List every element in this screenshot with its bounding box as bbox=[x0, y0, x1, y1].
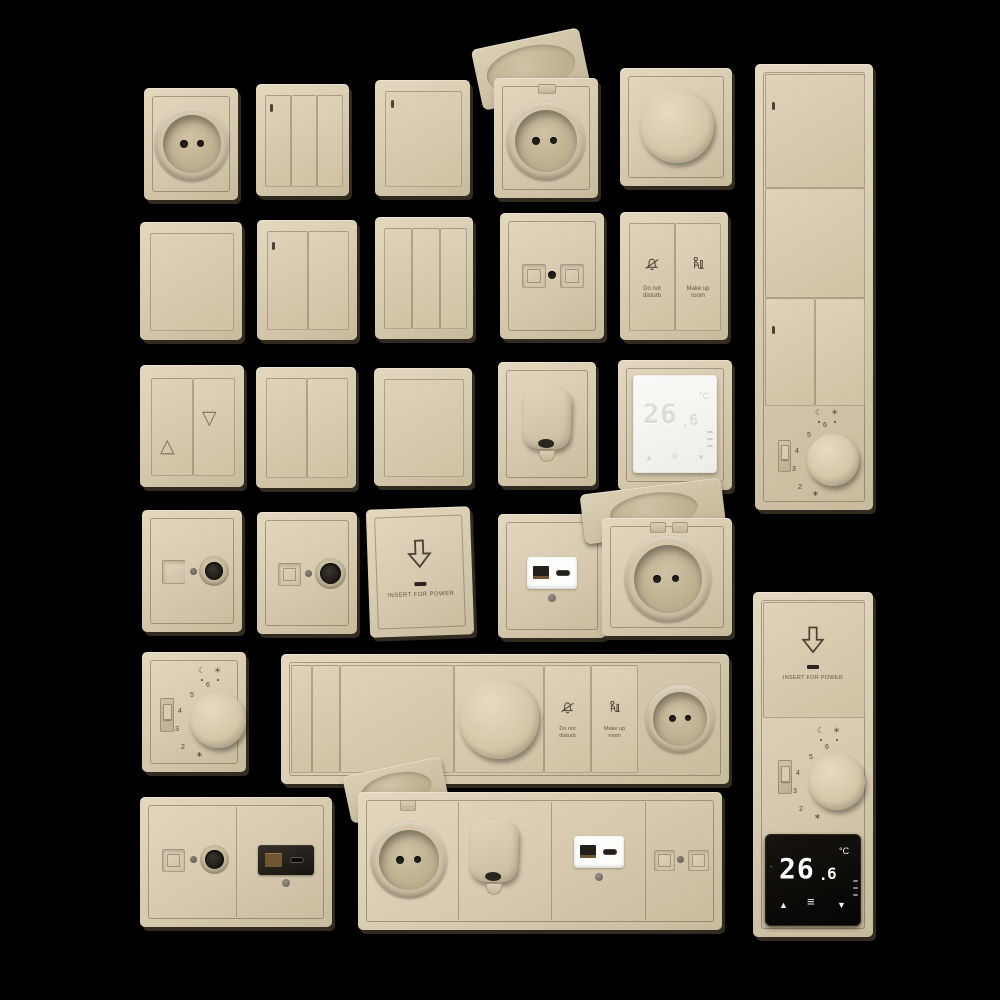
dial-number-3: 3 bbox=[175, 726, 179, 733]
dial-number-5: 5 bbox=[807, 432, 811, 439]
data-jack-opening bbox=[565, 269, 579, 283]
socket-pin-hole bbox=[197, 140, 204, 147]
heat-mode-mark: . bbox=[635, 409, 637, 416]
heat-mode-mark: . bbox=[770, 860, 772, 869]
cable-outlet-plate bbox=[498, 362, 596, 486]
temperature-unit: °C bbox=[839, 846, 849, 856]
socket-pin-hole bbox=[396, 856, 404, 864]
cable-outlet-boot bbox=[469, 819, 519, 883]
thermostat-white-screen[interactable]: 26 . 6 °C . ▲ ≡ ▼ bbox=[633, 375, 717, 473]
usb-a-port[interactable] bbox=[533, 566, 549, 579]
center-dot bbox=[190, 856, 197, 863]
thermostat-dial-plate: ☾ ☀ 6 5 4 3 2 ∗ bbox=[142, 652, 246, 772]
make-up-room-button[interactable]: Make up room bbox=[591, 665, 638, 773]
temperature-integer: 26 bbox=[643, 399, 678, 430]
module-seam bbox=[236, 807, 237, 917]
insert-card-arrow-icon bbox=[798, 625, 828, 657]
vertical-multi-panel: ☾ ☀ 6 5 4 3 2 ∗ bbox=[755, 64, 873, 510]
indicator-dot bbox=[391, 100, 394, 108]
lid-hinge-tab bbox=[538, 84, 556, 94]
usb-insert bbox=[527, 557, 577, 589]
temp-down-button[interactable]: ▼ bbox=[837, 900, 846, 910]
dial-tick bbox=[836, 739, 838, 741]
screen-side-mark bbox=[707, 431, 713, 433]
dial-number-3: 3 bbox=[792, 466, 796, 473]
switch-3gang-plate bbox=[256, 84, 349, 196]
screen-side-mark bbox=[853, 880, 858, 882]
usb-c-port[interactable] bbox=[603, 849, 617, 855]
dnd-label-line2: disturb bbox=[547, 733, 588, 740]
lid-hinge-tab bbox=[650, 522, 666, 533]
rocker-top[interactable] bbox=[765, 74, 865, 188]
socket-flip-plate-2 bbox=[602, 518, 732, 636]
maid-icon bbox=[606, 698, 623, 717]
thermostat-dial-knob[interactable] bbox=[809, 754, 865, 810]
data-jack-opening bbox=[527, 269, 541, 283]
multi-frame-horizontal-2 bbox=[358, 792, 722, 930]
triangle-down-icon: ▽ bbox=[202, 407, 217, 430]
indicator-dot bbox=[772, 326, 775, 334]
temp-up-button[interactable]: ▲ bbox=[779, 900, 788, 910]
rocker-left[interactable] bbox=[384, 228, 412, 329]
sun-icon: ☀ bbox=[831, 408, 838, 417]
dial-number-2: 2 bbox=[181, 744, 185, 751]
rocker-right[interactable] bbox=[317, 95, 343, 187]
dial-tick bbox=[820, 739, 822, 741]
socket-pin-hole bbox=[180, 140, 188, 148]
dial-number-6: 6 bbox=[206, 682, 210, 689]
coax-connector[interactable] bbox=[200, 845, 229, 874]
rocker-2gang-left[interactable] bbox=[765, 298, 815, 406]
rocker-right[interactable] bbox=[440, 228, 467, 329]
dimmer-plate bbox=[620, 68, 732, 186]
data-jack[interactable] bbox=[162, 849, 185, 872]
thermostat-black-screen[interactable]: 26 . 6 °C . ▲ ≡ ▼ bbox=[765, 834, 861, 926]
coax-connector[interactable] bbox=[199, 556, 229, 586]
dnd-label-line2: disturb bbox=[632, 293, 672, 300]
module-seam bbox=[645, 802, 646, 920]
make-up-room-button[interactable]: Make up room bbox=[675, 223, 721, 331]
temperature-unit: °C bbox=[699, 391, 709, 401]
usb-insert bbox=[574, 836, 624, 868]
frost-star-icon: ∗ bbox=[812, 489, 819, 498]
coax-connector[interactable] bbox=[315, 558, 346, 589]
product-collage-stage: ☾ ☀ 6 5 4 3 2 ∗ bbox=[0, 0, 1000, 1000]
data-jack-right[interactable] bbox=[560, 264, 584, 288]
socket-recess bbox=[653, 692, 707, 746]
card-slot[interactable] bbox=[807, 665, 819, 669]
keycard-holder-plate: INSERT FOR POWER bbox=[366, 506, 474, 638]
temperature-decimal: 6 bbox=[827, 864, 838, 883]
slider-knob[interactable] bbox=[163, 704, 172, 720]
dial-number-4: 4 bbox=[795, 448, 799, 455]
center-dot bbox=[190, 568, 197, 575]
data-jack[interactable] bbox=[278, 563, 301, 586]
screen-side-mark bbox=[707, 445, 713, 447]
dial-tick bbox=[201, 679, 203, 681]
thermostat-dial-knob[interactable] bbox=[807, 434, 859, 486]
socket-pin-hole bbox=[414, 856, 421, 863]
thermostat-dial-module: ☾ ☀ 6 5 4 3 2 ∗ bbox=[765, 406, 863, 500]
center-dot bbox=[305, 570, 312, 577]
rocker-narrow-1[interactable] bbox=[291, 665, 312, 773]
mur-label-line2: room bbox=[678, 293, 718, 300]
lid-hinge-tab bbox=[400, 800, 416, 811]
socket-recess bbox=[634, 545, 702, 613]
dial-number-5: 5 bbox=[190, 692, 194, 699]
tv-jack-notch[interactable] bbox=[162, 560, 185, 584]
thermostat-dial-knob[interactable] bbox=[190, 692, 246, 748]
module-seam bbox=[458, 802, 459, 920]
media-outlet-plate bbox=[500, 213, 604, 339]
data-jack-opening bbox=[167, 854, 180, 867]
moon-icon: ☾ bbox=[198, 666, 205, 675]
socket-pin-hole bbox=[685, 715, 691, 721]
dial-number-2: 2 bbox=[798, 484, 802, 491]
socket-pin-hole bbox=[669, 715, 676, 722]
dial-tick bbox=[834, 421, 836, 423]
dial-number-6: 6 bbox=[825, 744, 829, 751]
hotel-service-switch-plate: Do not disturb Make up room bbox=[620, 212, 728, 340]
rocker-middle[interactable] bbox=[291, 95, 317, 187]
switch-1gang-plate bbox=[375, 80, 470, 196]
data-jack-right[interactable] bbox=[688, 850, 709, 871]
keycard-holder-module[interactable]: INSERT FOR POWER bbox=[763, 602, 865, 718]
rocker-single[interactable] bbox=[150, 233, 234, 331]
screen-side-mark bbox=[853, 894, 858, 896]
data-jack-opening bbox=[658, 854, 671, 867]
indicator-dot bbox=[772, 102, 775, 110]
dial-number-2: 2 bbox=[799, 806, 803, 813]
switch-2gang-plate bbox=[257, 220, 357, 340]
dial-number-3: 3 bbox=[793, 788, 797, 795]
slider-knob[interactable] bbox=[781, 445, 789, 460]
temperature-decimal: 6 bbox=[689, 411, 699, 429]
data-jack-left[interactable] bbox=[522, 264, 546, 288]
thermostat-dial-module: ☾ ☀ 6 5 4 3 2 ∗ bbox=[763, 720, 863, 828]
moon-icon: ☾ bbox=[815, 408, 822, 417]
socket-pin-hole bbox=[550, 137, 557, 144]
blinds-switch-plate: △ ▽ bbox=[140, 365, 244, 487]
do-not-disturb-button[interactable]: Do not disturb bbox=[629, 223, 675, 331]
dial-number-4: 4 bbox=[796, 770, 800, 777]
bell-slash-icon bbox=[642, 254, 662, 274]
blank-plate bbox=[374, 368, 472, 486]
tv-usb-combo-plate bbox=[140, 797, 332, 927]
rocker-large-blank[interactable] bbox=[765, 188, 865, 298]
blinds-down-button[interactable]: ▽ bbox=[193, 378, 235, 476]
coax-opening bbox=[205, 562, 223, 580]
screw bbox=[595, 873, 603, 881]
socket-recess bbox=[379, 830, 439, 890]
plate-frame-line bbox=[374, 514, 466, 629]
socket-pin-hole bbox=[532, 137, 540, 145]
dnd-label-line1: Do not bbox=[632, 286, 672, 293]
blank-rocker-plate bbox=[140, 222, 242, 340]
rocker-left[interactable] bbox=[266, 378, 307, 478]
rocker-single[interactable] bbox=[384, 379, 464, 477]
mur-label-line2: room bbox=[594, 733, 635, 740]
screen-side-mark bbox=[707, 438, 713, 440]
temp-up-button[interactable]: ▲ bbox=[645, 453, 653, 462]
rocker-2gang-right[interactable] bbox=[815, 298, 865, 406]
socket-pin-hole bbox=[672, 575, 679, 582]
dial-number-4: 4 bbox=[178, 708, 182, 715]
coax-opening bbox=[205, 850, 224, 869]
sun-icon: ☀ bbox=[833, 726, 840, 735]
menu-button[interactable]: ≡ bbox=[807, 894, 815, 909]
moon-icon: ☾ bbox=[817, 726, 824, 735]
temp-down-button[interactable]: ▼ bbox=[697, 453, 705, 462]
multi-frame-horizontal: Do not disturb Make up room bbox=[281, 654, 729, 784]
dial-mode-slider[interactable] bbox=[778, 760, 792, 794]
cable-outlet-boot bbox=[522, 386, 572, 450]
usb-c-port[interactable] bbox=[556, 570, 570, 576]
cable-exit-hole bbox=[485, 872, 501, 882]
socket-pin-hole bbox=[653, 575, 661, 583]
do-not-disturb-button[interactable]: Do not disturb bbox=[544, 665, 591, 773]
dial-number-6: 6 bbox=[823, 422, 827, 429]
sun-icon: ☀ bbox=[214, 666, 221, 675]
slider-knob[interactable] bbox=[781, 766, 790, 782]
tv-outlet-b-plate bbox=[257, 512, 357, 634]
thermostat-dial-module: ☾ ☀ 6 5 4 3 2 ∗ bbox=[146, 660, 242, 764]
dial-mode-slider[interactable] bbox=[778, 440, 791, 472]
card-slot[interactable] bbox=[414, 582, 426, 586]
switch-3gang-plain-plate bbox=[375, 217, 473, 339]
screen-side-mark bbox=[853, 887, 858, 889]
vertical-hotel-panel: INSERT FOR POWER ☾ ☀ 6 5 4 3 2 ∗ 26 . 6 … bbox=[753, 592, 873, 937]
rocker-right[interactable] bbox=[307, 378, 348, 478]
coax-opening bbox=[320, 563, 341, 584]
rocker-right[interactable] bbox=[308, 231, 349, 330]
screw bbox=[282, 879, 290, 887]
mur-label-line1: Make up bbox=[678, 286, 718, 293]
usb-a-port[interactable] bbox=[580, 845, 596, 858]
blinds-up-button[interactable]: △ bbox=[151, 378, 193, 476]
dial-number-5: 5 bbox=[809, 754, 813, 761]
cable-exit-hole bbox=[538, 439, 554, 449]
rocker-middle[interactable] bbox=[412, 228, 440, 329]
triangle-up-icon: △ bbox=[160, 435, 175, 458]
usb-insert-black bbox=[258, 845, 314, 875]
socket-recess bbox=[515, 110, 577, 172]
dial-tick bbox=[818, 421, 820, 423]
tv-outlet-a-plate bbox=[142, 510, 242, 632]
socket-round-plate bbox=[144, 88, 238, 200]
switch-2gang-plain-plate bbox=[256, 367, 356, 488]
data-jack-opening bbox=[283, 568, 296, 581]
lid-hinge-tab bbox=[672, 522, 688, 533]
center-dot bbox=[677, 856, 684, 863]
data-jack-left[interactable] bbox=[654, 850, 675, 871]
bell-slash-icon bbox=[558, 698, 577, 717]
indicator-dot bbox=[272, 242, 275, 250]
indicator-dot bbox=[270, 104, 273, 112]
menu-button[interactable]: ≡ bbox=[671, 449, 678, 463]
usb-a-port[interactable] bbox=[265, 853, 282, 867]
frost-star-icon: ∗ bbox=[814, 812, 821, 821]
insert-for-power-label: INSERT FOR POWER bbox=[764, 675, 862, 682]
rocker-single[interactable] bbox=[385, 91, 462, 187]
dial-tick bbox=[217, 679, 219, 681]
usb-c-port[interactable] bbox=[290, 857, 304, 863]
data-jack-opening bbox=[692, 854, 705, 867]
maid-icon bbox=[689, 254, 707, 274]
dial-mode-slider[interactable] bbox=[160, 698, 174, 732]
screw bbox=[548, 594, 556, 602]
module-seam bbox=[551, 802, 552, 920]
socket-recess bbox=[163, 115, 221, 173]
temperature-integer: 26 bbox=[779, 852, 815, 885]
dimmer-knob[interactable] bbox=[640, 89, 714, 163]
insert-card-arrow-icon bbox=[403, 537, 436, 572]
dnd-label-line1: Do not bbox=[547, 726, 588, 733]
rocker-narrow-2[interactable] bbox=[312, 665, 340, 773]
rocker-left[interactable] bbox=[265, 95, 291, 187]
socket-flip-plate bbox=[494, 78, 598, 198]
thermostat-digital-white-plate: 26 . 6 °C . ▲ ≡ ▼ bbox=[618, 360, 732, 490]
mur-label-line1: Make up bbox=[594, 726, 635, 733]
frost-star-icon: ∗ bbox=[196, 750, 203, 759]
dimmer-knob[interactable] bbox=[459, 679, 539, 759]
center-hole bbox=[548, 271, 556, 279]
